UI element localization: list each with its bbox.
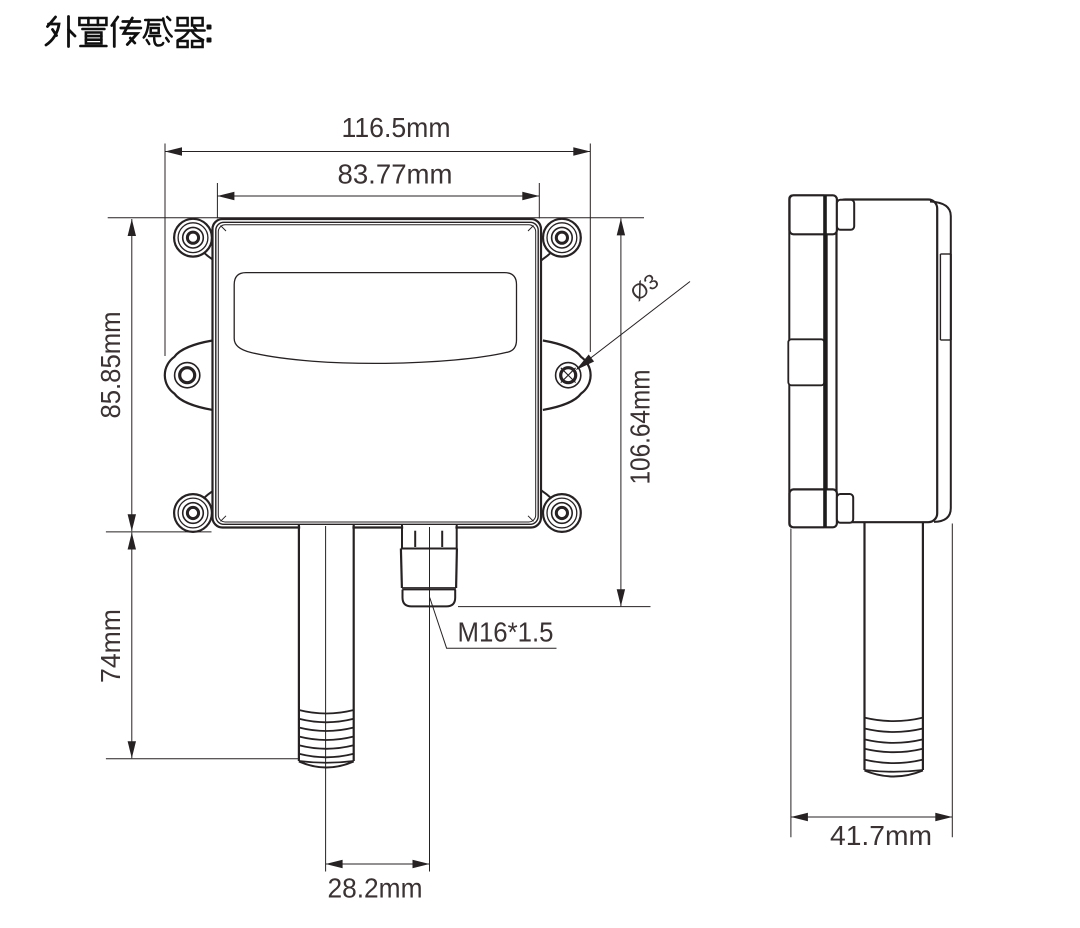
svg-text:Ø3: Ø3 (626, 269, 663, 306)
svg-text:83.77mm: 83.77mm (338, 159, 453, 190)
svg-text:74mm: 74mm (95, 609, 126, 683)
svg-text:28.2mm: 28.2mm (328, 873, 423, 904)
svg-text:M16*1.5: M16*1.5 (458, 617, 554, 648)
svg-text:85.85mm: 85.85mm (95, 312, 126, 419)
svg-text:116.5mm: 116.5mm (342, 112, 451, 143)
svg-text:106.64mm: 106.64mm (625, 370, 656, 485)
svg-text:41.7mm: 41.7mm (830, 820, 932, 851)
